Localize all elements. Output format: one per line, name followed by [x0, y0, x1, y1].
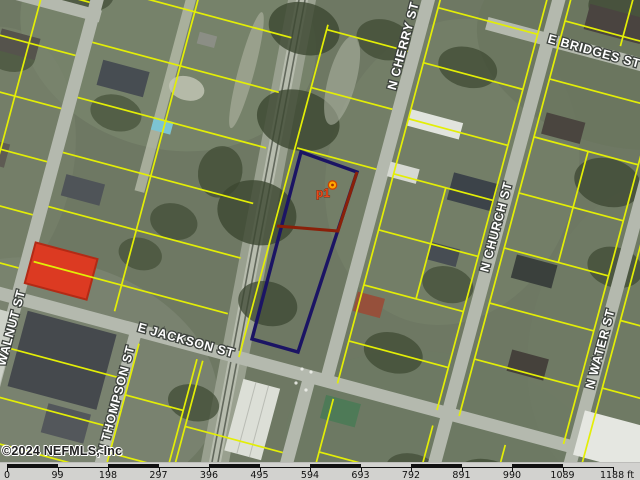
mls-map-screenshot: p1 WALNUT ST N THOMPSON ST E JACKSON ST … [0, 0, 640, 480]
scale-bar-segment [310, 464, 361, 468]
scale-bar-value: 891 [452, 470, 470, 480]
scale-bar-value: 198 [99, 470, 117, 480]
scale-bar-value: 594 [301, 470, 319, 480]
scale-bar-value: 396 [200, 470, 218, 480]
scale-bar-segment [411, 464, 462, 468]
scale-bar: 0 99 198 297 396 495 594 693 792 891 990… [0, 462, 640, 480]
copyright-attribution: ©2024 NEFMLS, Inc [2, 444, 122, 458]
aerial-map: p1 WALNUT ST N THOMPSON ST E JACKSON ST … [0, 0, 640, 462]
scale-bar-value: 99 [51, 470, 63, 480]
scale-bar-value: 990 [503, 470, 521, 480]
scale-bar-value: 495 [250, 470, 268, 480]
scale-bar-value: 1188 ft [600, 470, 634, 480]
scale-bar-segment [209, 464, 260, 468]
scale-bar-value: 693 [351, 470, 369, 480]
scale-bar-value: 1089 [550, 470, 574, 480]
scale-bar-value: 0 [4, 470, 10, 480]
map-canvas: p1 WALNUT ST N THOMPSON ST E JACKSON ST … [0, 0, 640, 462]
scale-bar-value: 297 [149, 470, 167, 480]
scale-bar-segment [108, 464, 159, 468]
scale-bar-value: 792 [402, 470, 420, 480]
scale-bar-segment [512, 464, 563, 468]
scale-bar-segment [7, 464, 58, 468]
parcel-marker-dot [331, 184, 334, 187]
parcel-marker-label: p1 [316, 186, 330, 200]
